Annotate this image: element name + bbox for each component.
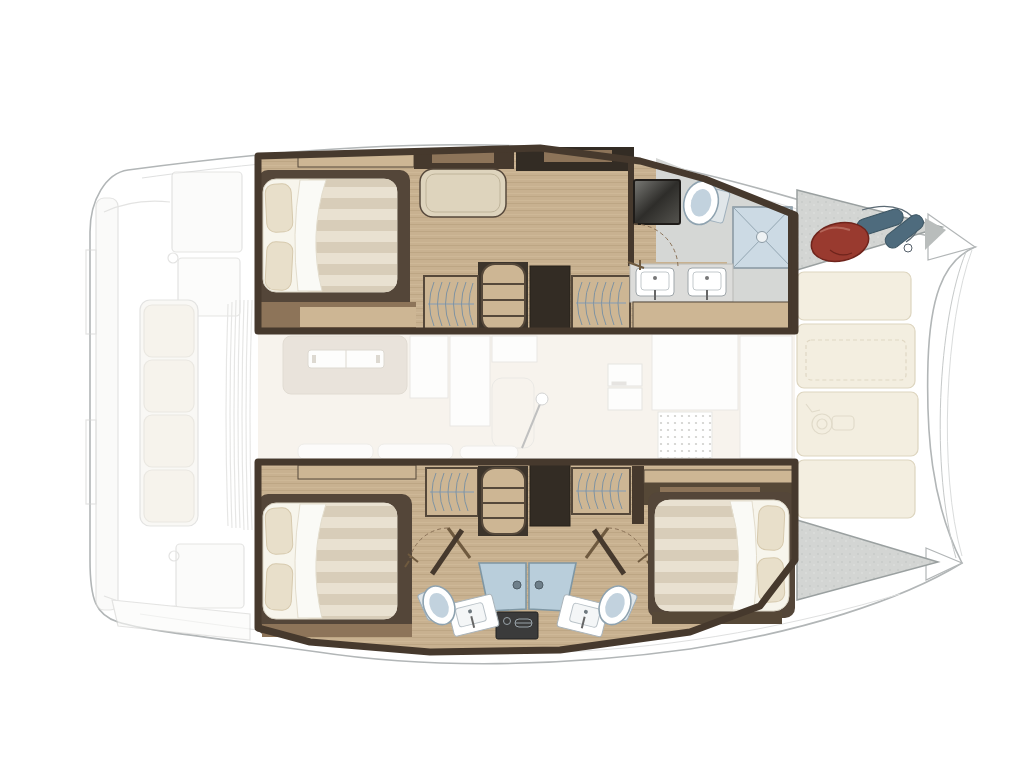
galley-stove-ghost — [658, 412, 712, 458]
upper-hull — [258, 147, 797, 333]
table-hinge-2 — [376, 355, 380, 363]
mast-ball — [536, 393, 548, 405]
lower-fwd-top-cabinet — [644, 470, 794, 483]
upper-closet-dark — [530, 266, 570, 333]
upper-hanging-locker-right — [572, 276, 630, 331]
lower-hull — [258, 462, 795, 652]
salon-ghost — [258, 334, 795, 459]
aft-hatch-1 — [172, 172, 242, 252]
transom-panel — [96, 198, 118, 610]
vanity-sinks-upper — [630, 264, 733, 302]
upper-seat — [420, 169, 506, 217]
bed-foot-shelf-light — [300, 307, 416, 327]
bed-pillow-2 — [265, 563, 293, 610]
foredeck-cushion-4 — [797, 460, 915, 518]
bed-pillow-1 — [265, 183, 293, 232]
catamaran-deck-plan — [0, 0, 1024, 768]
floorplan-page — [0, 0, 1024, 768]
lower-closet-dark — [530, 464, 570, 526]
foredeck-lounge — [797, 272, 918, 518]
lower-shelf-above-bed — [298, 465, 416, 479]
lower-cabinet-column — [632, 466, 644, 524]
shower-door-handle-2 — [535, 581, 543, 589]
upper-aft-bed — [258, 170, 416, 331]
table-hinge-1 — [312, 355, 316, 363]
upper-hanging-locker-left — [424, 276, 478, 332]
bed-pillow-2 — [265, 241, 293, 290]
lower-stairs — [478, 466, 528, 536]
foredeck-cushion-3 — [797, 392, 918, 456]
lower-fwd-bed — [648, 492, 795, 624]
foredeck-cushion-1 — [797, 272, 911, 320]
aft-hatch-3 — [176, 544, 244, 608]
bow-sheer-line-2 — [947, 250, 972, 556]
salon-bench-ghosts — [298, 444, 518, 459]
foredeck-cushion-2 — [797, 324, 915, 388]
bed-pillow-1 — [265, 507, 293, 554]
shower-upper — [733, 207, 792, 268]
lower-hanging-locker-left — [426, 468, 478, 516]
upper-stairs — [478, 262, 528, 333]
lower-aft-bed — [258, 494, 412, 637]
shower-door-handle-1 — [513, 581, 521, 589]
mirror-cabinet — [634, 180, 680, 224]
bed-pillow-1 — [757, 505, 785, 550]
upper-fwd-cabinet-band — [633, 302, 795, 331]
lower-hanging-locker-right — [572, 468, 630, 514]
